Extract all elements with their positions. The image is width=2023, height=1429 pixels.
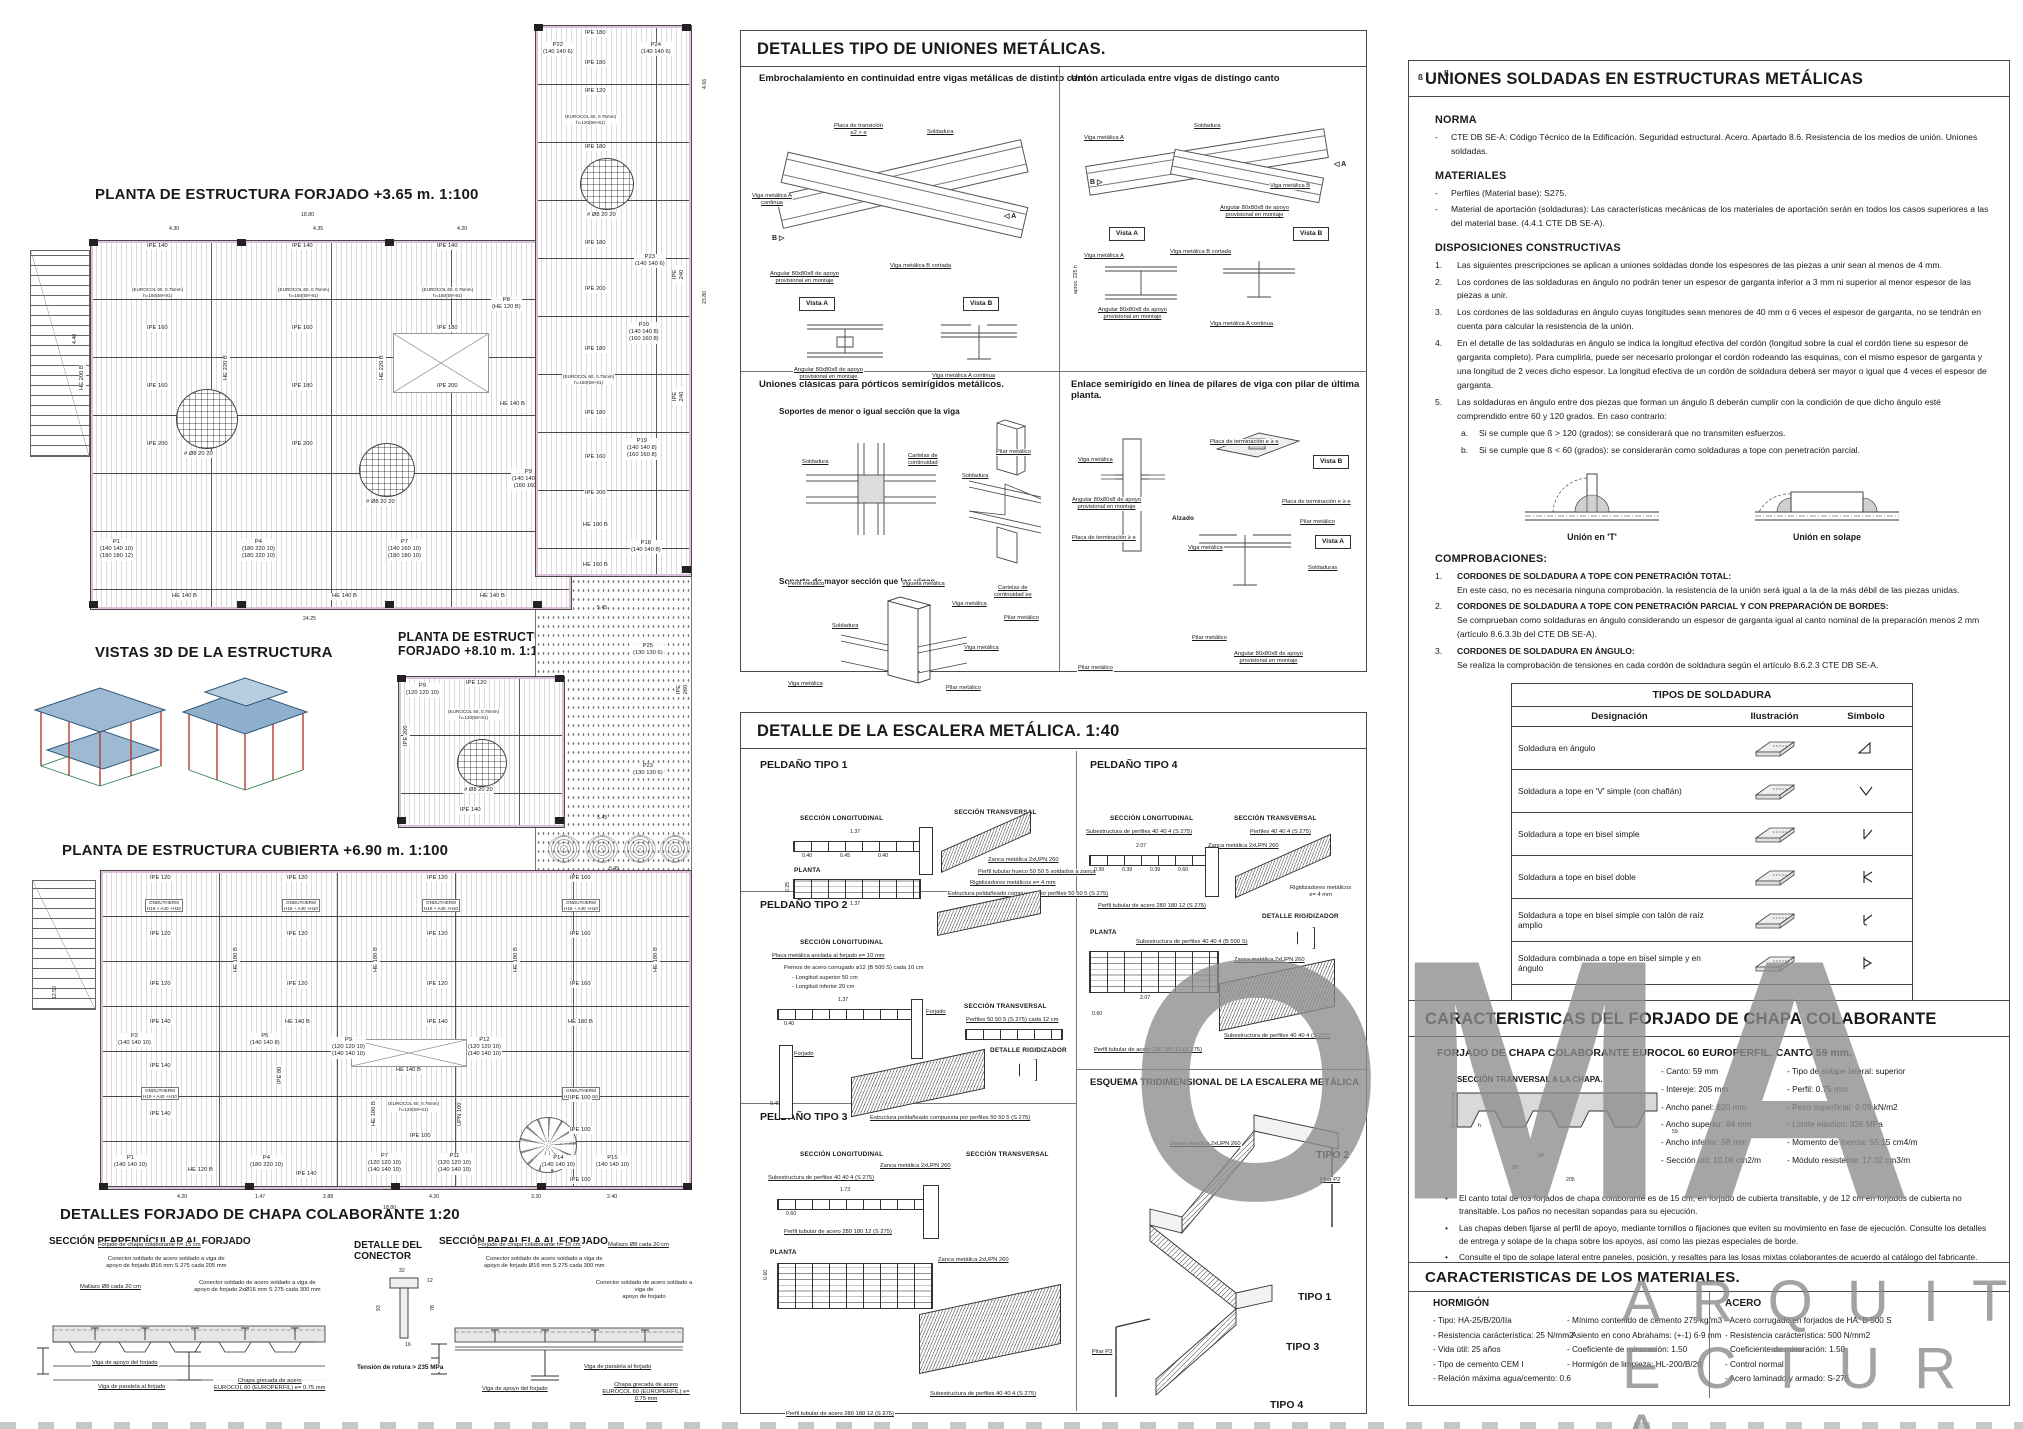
callout-label: Viga metálica: [1077, 457, 1114, 464]
callout-label: Cartelas de continuidad ≥e: [993, 585, 1033, 599]
subtitle-enlace-semirigido: Enlace semirígido en línea de pilares de…: [1071, 379, 1366, 401]
dim-label: 23.80: [702, 290, 709, 305]
plan-label: [176, 389, 238, 449]
plan-label: P11 (120 120 10) (140 140 10): [437, 1153, 472, 1175]
plan-label: P4 (180 220 10): [249, 1155, 284, 1169]
callout-label: Angular 80x80x8 de apoyo provisional en …: [793, 367, 864, 381]
plan-label: IPE 260: [676, 682, 690, 697]
plan-label: [548, 835, 580, 863]
escalera-label: 0.39: [1149, 867, 1161, 874]
plan-label: IPE 120: [286, 931, 309, 938]
callout-label: Soldadura: [926, 129, 954, 136]
escalera-label: Pernos de acero corrugado ø12 (B 500 S) …: [783, 965, 925, 972]
plan-label: IPE 100: [569, 1095, 592, 1102]
hormigon-col1: - Tipo: HA-25/B/20/IIa - Resistencia car…: [1433, 1314, 1574, 1387]
plan-label: IPE 180: [584, 144, 607, 151]
plan-label: (EUROCOL 60, 0.75mm) h=150(59+91): [562, 374, 615, 385]
detail-label: Viga de apoyo del forjado: [91, 1360, 159, 1367]
plan-label: [385, 601, 394, 608]
escalera-label: TIPO 4: [1269, 1399, 1304, 1412]
escalera-label: Zanca metálica 2xUPN 260: [937, 1257, 1010, 1264]
plan-label: [385, 239, 394, 246]
plan-label: HE 180 B: [582, 522, 609, 529]
escalera-label: Perfiles 40 40 4 (S 275): [1249, 829, 1312, 836]
callout-label: Viga metálica: [787, 681, 824, 688]
subtitle-union-articulada: Unión articulada entre vigas de distingo…: [1071, 73, 1280, 84]
scan-artifacts: [0, 1422, 2023, 1429]
callout-label: B ▷: [771, 235, 785, 244]
watermark-text: A R Q U I T E C T U R A: [1622, 1268, 2023, 1429]
plan-label: P1 (140 140 10): [113, 1155, 148, 1169]
plan-label: IPE 120: [149, 931, 172, 938]
escalera-label: [777, 1009, 913, 1020]
callout-label: Perfil metálico: [787, 581, 825, 588]
plan-label: IPE 140: [295, 1171, 318, 1178]
section-sketch: [803, 319, 887, 365]
plan-label: IPE 120: [149, 981, 172, 988]
dim-label: 4.20: [428, 1194, 440, 1201]
plan-label: [682, 24, 691, 31]
detail-label: Conector soldado de acero soldado a viga…: [483, 1256, 606, 1270]
plan-label: HE 140 B: [479, 593, 506, 600]
plan-label: [555, 817, 564, 824]
escalera-label: - Longitud inferior 20 cm: [791, 984, 856, 991]
escalera-label: - Longitud superior 50 cm: [791, 975, 859, 982]
beta-label: ß: [1417, 73, 1424, 83]
heading-hormigon: HORMIGÓN: [1433, 1298, 1489, 1309]
plan-label: HE 180 B: [653, 946, 660, 973]
stair-plan-sketch: [30, 250, 90, 457]
plan-label: P25 (130 130 6): [632, 643, 664, 657]
callout-label: Placa de transición e2 > e: [833, 123, 884, 137]
weld-illustration-icon: [1752, 820, 1798, 848]
plan-label: IPE 120: [465, 680, 488, 687]
escalera-label: Subestructura de perfiles 40 40 4 (S 275…: [767, 1175, 875, 1182]
plan-label: P23 (130 130 6): [632, 763, 664, 777]
callout-label: Vista A: [799, 297, 835, 311]
plan-label: # Ø8 20 20: [183, 451, 214, 458]
connector-note: Tensión de rotura > 235 MPa: [356, 1364, 444, 1372]
materiales-item: -Material de aportación (soldaduras): La…: [1435, 203, 1989, 231]
callout-label: Cartelas de continuidad: [907, 453, 939, 467]
disposicion-item: 1.Las siguientes prescripciones se aplic…: [1435, 259, 1989, 273]
plan-label: IPE 120: [149, 875, 172, 882]
subtitle-embrochalamiento: Embrochalamiento en continuidad entre vi…: [759, 73, 1095, 84]
disposicion-item: 2.Los cordones de las soldaduras en ángu…: [1435, 276, 1989, 304]
plan-label: IPE 240: [672, 265, 686, 284]
heading-comprobaciones: COMPROBACIONES:: [1435, 553, 1989, 565]
plan-label: IPE 180: [584, 410, 607, 417]
plan-label: P23 (140 140 6): [634, 254, 666, 268]
callout-label: Viga metálica A continua: [751, 193, 793, 207]
callout-label: Viga metálica A continua: [1209, 321, 1274, 328]
escalera-label: SECCIÓN LONGITUDINAL: [1109, 815, 1194, 823]
plan-label: IPE 160: [569, 875, 592, 882]
panel-escalera-title: DETALLE DE LA ESCALERA METÁLICA. 1:40: [741, 713, 1366, 749]
plan-label: IPE 160: [291, 325, 314, 332]
escalera-label: Forjado: [925, 1009, 947, 1016]
disposicion-item: 3.Los cordones de las soldaduras en ángu…: [1435, 306, 1989, 334]
vista-3d-derecha: [175, 662, 315, 807]
plan-label: [534, 24, 543, 31]
detail-label: Viga de paralela al forjado: [583, 1364, 652, 1371]
plan-label: (EUROCOL 60, 0.75mm) h=150(59+91): [277, 287, 330, 298]
escalera-label: Rigidizadores metálicos e= 4 mm: [969, 880, 1057, 887]
plan-label: IPE 200: [403, 724, 410, 747]
escalera-label: [777, 1199, 925, 1210]
plan-label: [245, 1183, 254, 1190]
callout-label: ◁ A: [1333, 161, 1347, 170]
escalera-label: 2.07: [1135, 843, 1147, 850]
plan-label: HE 160 B: [582, 562, 609, 569]
plan-label: # Ø8 20 20: [463, 787, 494, 794]
disposicion-subitem: b.Si se cumple que ß < 60 (grados): se c…: [1461, 444, 1989, 458]
comprobacion-item: 1. CORDONES DE SOLDADURA A TOPE CON PENE…: [1435, 570, 1989, 598]
plan-label: HE 140 B: [499, 401, 526, 408]
dim-label: 4.66: [702, 78, 709, 90]
uniones-body: Embrochalamiento en continuidad entre vi…: [741, 67, 1366, 671]
escalera-label: PLANTA: [1089, 929, 1118, 937]
callout-label: B ▷: [1089, 179, 1103, 188]
plan-label: IPE 200: [146, 441, 169, 448]
plan-label: IPE 160: [584, 454, 607, 461]
callout-label: Angular 80x80x8 de apoyo provisional en …: [1071, 497, 1142, 511]
weld-union-figures: Unión en 'T' ß Unión en solape ß: [1435, 468, 1989, 542]
plan-label: [537, 1183, 546, 1190]
heading-peldano-3: PELDAÑO TIPO 3: [759, 1111, 849, 1124]
plan-label: P20 (140 140 8) (160 160 8): [628, 322, 660, 344]
plan-label: IPE 140: [149, 1111, 172, 1118]
callout-label: Vista B: [963, 297, 999, 311]
plan-label: IPE 140: [149, 1063, 172, 1070]
plan-label: HE 180 B: [513, 946, 520, 973]
escalera-label: 1.37: [849, 901, 861, 908]
divider: [1059, 67, 1060, 671]
watermark-logo: OMA: [1128, 908, 1922, 1251]
plan-label: [237, 239, 246, 246]
escalera-label: PLANTA: [793, 867, 822, 875]
callout-label: Soldaduras: [1307, 565, 1338, 572]
escalera-label: Perfil tubular de acero 280 180 12 (S 27…: [783, 1229, 893, 1236]
plan-label: IPE 180: [584, 240, 607, 247]
plan-label: IPE 120: [426, 875, 449, 882]
plan-label: HE 220 B: [379, 354, 386, 381]
subtitle-soportes-menor: Soportes de menor o igual sección que la…: [779, 407, 960, 416]
plan-label: [533, 601, 542, 608]
figura-union-solape: Unión en solape ß: [1747, 468, 1907, 542]
plan-label: IPE 100: [569, 1177, 592, 1184]
plan-label: P1 (140 140 10) (180 180 12): [99, 539, 134, 561]
weld-table-row: Soldadura en ángulo: [1512, 726, 1912, 769]
detail-label: Mallazo Ø8 cada 20 cm: [607, 1242, 670, 1249]
plan-forjado-810: P9 (120 120 10)IPE 120IPE 200(EUROCOL 60…: [398, 676, 565, 828]
dim-label: 24.25: [302, 616, 317, 623]
callout-label: Viga metálica B: [1269, 183, 1311, 190]
plan-label: ONDUTHERM H19 + A40 +H10: [422, 899, 460, 912]
plan-label: P9 (120 120 10): [405, 683, 440, 697]
weld-table-row: Soldadura a tope en bisel simple: [1512, 812, 1912, 855]
detail-label: Forjado de chapa colaborante h= 15 cm: [97, 1242, 202, 1249]
escalera-label: SECCIÓN LONGITUDINAL: [799, 1151, 884, 1159]
plan-label: IPE 120: [426, 931, 449, 938]
detail-label: Conector soldado de acero soldado a viga…: [593, 1280, 695, 1302]
escalera-label: Estructura peldañeado compuesta por perf…: [869, 1115, 1031, 1122]
dim-label: 4.30: [168, 226, 180, 233]
plan-label: [391, 1183, 400, 1190]
detail-label: Mallazo Ø8 cada 20 cm: [79, 1284, 142, 1291]
escalera-label: [1089, 855, 1207, 866]
plan-label: IPE 140: [459, 807, 482, 814]
dim-label: 18.80: [382, 1205, 397, 1212]
escalera-label: [911, 999, 923, 1059]
plan-label: IPE 180: [584, 60, 607, 67]
callout-label: Angular 80x80x8 de apoyo provisional en …: [1233, 651, 1304, 665]
plan-label: [555, 675, 564, 682]
plan-label: HE 180 B: [371, 1100, 378, 1127]
plan-label: HE 180 B: [567, 1019, 594, 1026]
plan-label: IPE 180: [436, 325, 459, 332]
plan-label: ONDUTHERM H19 + A40 +H10: [562, 899, 600, 912]
escalera-label: 0.60: [763, 1269, 770, 1281]
callout-label: Viga metálica A continua: [931, 373, 996, 380]
dim-label: 18.80: [300, 212, 315, 219]
callout-label: Placa de terminación e ≥ e: [1209, 439, 1280, 446]
escalera-label: 0.25: [785, 881, 792, 893]
plan-label: HE 140 B: [395, 1067, 422, 1074]
callout-label: Angular 80x80x8 de apoyo provisional en …: [1097, 307, 1168, 321]
plan-label: IPE 160: [146, 383, 169, 390]
section-sketch: [937, 319, 1021, 365]
alzado-sketch: [1193, 525, 1297, 597]
pilar-mayor-3d-sketch: [833, 595, 973, 695]
plan-label: IPE 100: [569, 1127, 592, 1134]
callout-label: Placa de terminación ≥ e: [1071, 535, 1137, 542]
plan-label: [397, 817, 406, 824]
detail-label: Viga de paralela al forjado: [97, 1384, 166, 1391]
plan-label: IPE 160: [569, 981, 592, 988]
weld-symbol-icon: [1855, 740, 1877, 756]
callout-label: Viga metálica A: [1083, 253, 1125, 260]
plan-forjado-365-strip: IPE 180IPE 180P22 (140 140 6)P24 (140 14…: [535, 25, 692, 577]
disposicion-item: 4.En el detalle de las soldaduras en áng…: [1435, 337, 1989, 393]
comprobacion-item: 2. CORDONES DE SOLDADURA A TOPE CON PENE…: [1435, 600, 1989, 642]
escalera-label: 0.40: [769, 1101, 781, 1108]
callout-label: Placa de terminación e ≥ e: [1281, 499, 1352, 506]
plan-label: [99, 1183, 108, 1190]
comprobacion-item: 3. CORDONES DE SOLDADURA EN ÁNGULO:Se re…: [1435, 645, 1989, 673]
plan-label: P19 (140 140 8) (160 160 8): [626, 438, 658, 460]
pilar-3d-sketch: [959, 419, 1051, 569]
escalera-label: [919, 827, 933, 875]
callout-label: Pilar metálico: [1191, 635, 1228, 642]
panel-uniones-metalicas: DETALLES TIPO DE UNIONES METÁLICAS. Embr…: [740, 30, 1367, 672]
callout-label: Vista A: [1315, 535, 1351, 549]
escalera-label: DETALLE RIGIDIZADOR: [989, 1047, 1068, 1055]
callout-label: Pilar metálico: [1077, 665, 1114, 672]
callout-label: Viga metálica B cortada: [889, 263, 952, 270]
plan-label: IPE 160: [146, 325, 169, 332]
plan-label: P2 (140 140 10): [117, 1033, 152, 1047]
plan-label: IPE 140: [146, 243, 169, 250]
dim-label: 4.40: [72, 333, 79, 345]
escalera-label: 0.60: [785, 1211, 797, 1218]
plan-label: HE 220 B: [223, 354, 230, 381]
plan-label: HE 140 B: [171, 593, 198, 600]
weld-symbol-icon: [1855, 783, 1877, 799]
dim-label: 32: [398, 1268, 406, 1275]
plan-label: P15 (140 140 10): [595, 1155, 630, 1169]
escalera-label: SECCIÓN LONGITUDINAL: [799, 815, 884, 823]
plan-label: IPE 200: [291, 441, 314, 448]
escalera-label: [779, 1045, 793, 1119]
plan-label: IPE 180: [584, 30, 607, 37]
escalera-label: Perfil tubular de acero 280 180 12 (S 27…: [785, 1411, 895, 1418]
plan-label: IPE 200: [584, 286, 607, 293]
plan-label: (EUROCOL 60, 0.75mm) h=120(59+61): [447, 709, 500, 720]
heading-peldano-4: PELDAÑO TIPO 4: [1089, 759, 1179, 772]
callout-label: Viga metálica: [1187, 545, 1224, 552]
callout-label: Viga metálica A: [1083, 135, 1125, 142]
weld-table-row: Soldadura a tope en 'V' simple (con chaf…: [1512, 769, 1912, 812]
plan-label: IPE 120: [286, 875, 309, 882]
plan-label: [397, 675, 406, 682]
escalera-label: [919, 1284, 1061, 1374]
escalera-label: Zanca metálica 2xUPN 260: [879, 1163, 952, 1170]
escalera-label: 0.60: [1177, 867, 1189, 874]
plan-label: IPE 160: [569, 931, 592, 938]
callout-label: Vista A: [1109, 227, 1145, 241]
plan-label: ONDUTHERM H19 + A40 +H10: [145, 899, 183, 912]
detail-label: Conector soldado de acero soldado a viga…: [193, 1280, 322, 1294]
escalera-label: [793, 879, 921, 899]
plan-label: P14 (140 140 10): [541, 1155, 576, 1169]
escalera-label: SECCIÓN TRANSVERSAL: [1233, 815, 1318, 823]
escalera-label: Perfil tubular hueco 50 50 5 soldados a …: [977, 869, 1097, 876]
detail-label: Chapa grecada de acero EUROCOL 60 (EUROP…: [213, 1378, 326, 1392]
callout-label: Alzado: [1171, 515, 1195, 523]
escalera-label: Zanca metálica 2xUPN 260: [987, 857, 1060, 864]
plan-label: P8 (HE 120 B): [491, 297, 522, 311]
plan-label: [660, 835, 690, 863]
callout-label: Soldadura: [801, 459, 829, 466]
plan-label: [89, 239, 98, 246]
plan-label: IPE 140: [426, 1019, 449, 1026]
plan-label: ONDUTHERM H19 + A40 +H10: [141, 1087, 179, 1100]
detail-label: Conector soldado de acero soldado a viga…: [105, 1256, 228, 1270]
callout-label: Pilar metálico: [995, 449, 1032, 456]
escalera-label: [965, 1029, 1063, 1040]
escalera-label: 0.45: [839, 853, 851, 860]
plan-label: IPE 120: [584, 88, 607, 95]
escalera-label: SECCIÓN TRANSVERSAL: [963, 1003, 1048, 1011]
plan-label: P7 (120 120 10) (140 140 10): [367, 1153, 402, 1175]
plan-label: [682, 566, 691, 573]
title-detalles-chapa: DETALLES FORJADO DE CHAPA COLABORANTE 1:…: [60, 1206, 460, 1223]
heading-norma: NORMA: [1435, 114, 1989, 126]
plan-label: [624, 835, 656, 863]
callout-label: Vigueta metálica: [901, 581, 946, 588]
title-vistas-3d: VISTAS 3D DE LA ESTRUCTURA: [95, 644, 333, 661]
plan-label: HE 200 B: [79, 364, 86, 391]
escalera-label: 0.39: [1093, 867, 1105, 874]
stair-plan-sketch-2: [32, 880, 96, 1010]
figura-union-t: Unión en 'T' ß: [1517, 468, 1667, 542]
callout-label: Vista B: [1313, 455, 1349, 469]
escalera-label: 1.73: [839, 1187, 851, 1194]
escalera-label: SECCIÓN LONGITUDINAL: [799, 939, 884, 947]
plan-label: IPE 120: [426, 981, 449, 988]
materiales-item: -Perfiles (Material base): S275.: [1435, 187, 1989, 201]
plan-label: [580, 158, 634, 210]
plan-label: (EUROCOL 60, 0.75mm) h=150(59+91): [421, 287, 474, 298]
plan-label: ONDUTHERM H19 + A40 +H10: [282, 899, 320, 912]
seccion-perpendicular: SECCIÓN PERPENDÍCULAR AL FORJADO Forjado…: [35, 1236, 345, 1422]
title-planta-forjado-365: PLANTA DE ESTRUCTURA FORJADO +3.65 m. 1:…: [95, 186, 479, 203]
dim-label: 93: [376, 1304, 383, 1312]
callout-label: Angular 80x80x8 de apoyo provisional en …: [1219, 205, 1290, 219]
panel-uniones-soldadas: UNIONES SOLDADAS EN ESTRUCTURAS METÁLICA…: [1408, 60, 2010, 1002]
weld-symbol-icon: [1855, 869, 1877, 885]
escalera-label: [1019, 1059, 1037, 1081]
drawing-sheet: PLANTA DE ESTRUCTURA FORJADO +3.65 m. 1:…: [0, 0, 2023, 1429]
plan-label: P12 (120 120 10) (140 140 10): [467, 1037, 502, 1059]
plan-label: # Ø8 20 20: [365, 499, 396, 506]
plan-label: [586, 835, 618, 863]
escalera-label: 1.37: [849, 829, 861, 836]
disposicion-subitem: a.Si se cumple que ß > 120 (grados): se …: [1461, 427, 1989, 441]
detail-label: Forjado de chapa colaborante h= 15 cm: [477, 1242, 582, 1249]
weld-illustration-icon: [1752, 777, 1798, 805]
plan-label: [683, 1183, 692, 1190]
callout-label: Pilar metálico: [1003, 615, 1040, 622]
escalera-label: Subestructura de perfiles 40 40 4 (S 275…: [929, 1391, 1037, 1398]
plan-label: IPE 200: [436, 383, 459, 390]
plan-label: P22 (140 140 6): [542, 42, 574, 56]
dim-label: 4.20: [176, 1194, 188, 1201]
escalera-label: Subestructura de perfiles 40 40 4 (S 275…: [1085, 829, 1193, 836]
plan-label: P4 (180 220 10) (180 220 10): [241, 539, 276, 561]
callout-label: Soldadura: [831, 623, 859, 630]
title-planta-cubierta: PLANTA DE ESTRUCTURA CUBIERTA +6.90 m. 1…: [62, 842, 448, 859]
dim-label: 5.45: [608, 866, 620, 873]
escalera-label: 0.39: [1121, 867, 1133, 874]
plan-label: IPE 100: [409, 1133, 432, 1140]
escalera-label: Pilar P3: [1091, 1349, 1113, 1356]
weld-table-title: TIPOS DE SOLDADURA: [1512, 684, 1912, 706]
divider: [1076, 751, 1077, 1411]
vista-3d-izquierda: [25, 668, 175, 803]
escalera-label: [923, 1185, 939, 1239]
callout-label: Viga metálica: [951, 601, 988, 608]
escalera-label: TIPO 1: [1297, 1291, 1332, 1304]
callout-label: Angular 80x80x8 de apoyo provisional en …: [769, 271, 840, 285]
plan-label: IPE 140: [436, 243, 459, 250]
escalera-label: Perfiles 50 50 5 (S 275) cada 12 cm: [965, 1017, 1059, 1024]
plan-label: IPE 120: [286, 981, 309, 988]
heading-disposiciones: DISPOSICIONES CONSTRUCTIVAS: [1435, 242, 1989, 254]
plan-label: P24 (140 140 6): [640, 42, 672, 56]
plan-label: IPE 200: [584, 490, 607, 497]
callout-label: aprox. 225 h: [1073, 264, 1080, 295]
callout-label: Viga metálica B cortada: [1169, 249, 1232, 256]
callout-label: Vista B: [1293, 227, 1329, 241]
escalera-label: 0.40: [801, 853, 813, 860]
callout-label: Viga metálica: [963, 645, 1000, 652]
dim-label: 78: [430, 1304, 437, 1312]
plan-label: IPE 140: [291, 243, 314, 250]
weld-symbol-icon: [1855, 826, 1877, 842]
section-sketch: [1101, 259, 1181, 303]
